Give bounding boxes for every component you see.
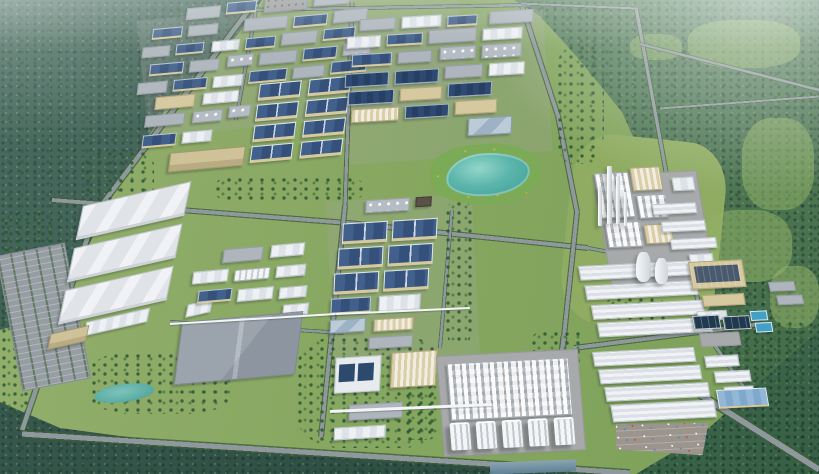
building-white-long	[598, 364, 702, 384]
building-blue-big	[392, 218, 438, 242]
building-white-long	[652, 202, 698, 215]
building-dark	[415, 196, 431, 207]
building-solar	[405, 103, 450, 119]
cooling-tower	[655, 258, 668, 284]
chimney-stack	[598, 186, 602, 226]
building-solar-tan	[688, 259, 747, 289]
building-pad	[699, 332, 741, 348]
building-blue-big	[342, 221, 388, 245]
building-white	[181, 129, 212, 144]
building-white	[401, 14, 442, 28]
building-white-long	[661, 220, 707, 233]
building-blue-big	[383, 268, 429, 292]
cooling-tower	[636, 252, 651, 282]
building-blue-light	[716, 388, 769, 409]
building-glass	[329, 318, 366, 334]
building-silos-v	[553, 417, 575, 446]
building-pool-bright	[750, 310, 769, 321]
building-pool	[692, 315, 721, 330]
tree-grove	[444, 200, 474, 346]
building-stripes	[373, 317, 414, 332]
building-stripes	[390, 350, 438, 389]
building-gray	[359, 17, 396, 31]
building-plantmix	[447, 357, 574, 421]
building-tanks	[228, 104, 251, 118]
building-tan	[702, 293, 746, 307]
building-blue-big	[299, 138, 343, 159]
building-blue	[141, 133, 177, 149]
building-stripes	[629, 166, 663, 191]
building-solar	[395, 68, 440, 85]
building-white	[275, 264, 306, 279]
building-blue-big	[387, 243, 433, 267]
tree-grove	[214, 176, 364, 202]
building-silos-v	[527, 418, 549, 447]
building-tan-big	[168, 146, 246, 173]
building-white	[671, 176, 695, 191]
chimney-stack	[624, 192, 627, 226]
building-pool-bright	[755, 322, 774, 333]
building-blue-big	[250, 143, 294, 164]
building-tanks	[365, 198, 410, 214]
building-silos	[233, 267, 270, 282]
building-gray	[768, 281, 796, 292]
building-gray	[428, 27, 477, 44]
building-solar	[345, 71, 390, 88]
building-solar	[348, 89, 395, 106]
building-stripes	[351, 106, 400, 123]
building-white-long	[714, 370, 752, 384]
building-silos-v	[449, 422, 471, 451]
building-white	[192, 269, 230, 285]
building-white-long	[610, 400, 717, 423]
building-gray	[398, 50, 433, 64]
tree-grove	[742, 320, 812, 392]
chimney-stack	[616, 176, 620, 224]
building-tan	[455, 99, 498, 115]
building-pool	[722, 315, 751, 330]
building-glass	[468, 116, 513, 137]
building-blue-big	[302, 117, 346, 138]
building-white	[237, 286, 275, 302]
building-white-long	[670, 237, 718, 250]
building-white	[347, 35, 382, 49]
building-white-long	[592, 347, 696, 367]
building-gray	[445, 64, 484, 79]
building-white	[270, 242, 306, 258]
building-tanks	[481, 42, 522, 58]
building-gray	[776, 294, 804, 305]
building-tan	[400, 86, 443, 101]
building-blue-big	[338, 246, 384, 270]
building-white-long	[704, 354, 740, 368]
chimney-stack	[607, 166, 612, 224]
building-white	[482, 26, 523, 40]
building-blue	[447, 14, 477, 27]
building-white-long	[604, 382, 710, 402]
building-silos-v	[501, 419, 523, 448]
building-blue	[197, 288, 233, 304]
building-white	[488, 61, 525, 76]
building-white	[278, 285, 307, 299]
building-gray	[489, 9, 534, 25]
parking-lot-southeast	[612, 419, 714, 459]
tree-grove	[556, 44, 604, 164]
building-pools	[334, 355, 382, 394]
building-tanks	[227, 53, 254, 67]
field-patch	[742, 118, 814, 210]
building-blue	[352, 52, 393, 67]
building-silos-v	[475, 421, 497, 450]
building-tanks	[440, 45, 477, 60]
building-blue-big	[333, 271, 379, 295]
building-blue-big	[252, 122, 296, 143]
canal-south	[490, 460, 576, 474]
building-gray	[222, 246, 264, 263]
building-solar	[448, 81, 493, 98]
aerial-render-industrial-park	[0, 0, 819, 474]
building-blue	[386, 32, 423, 46]
